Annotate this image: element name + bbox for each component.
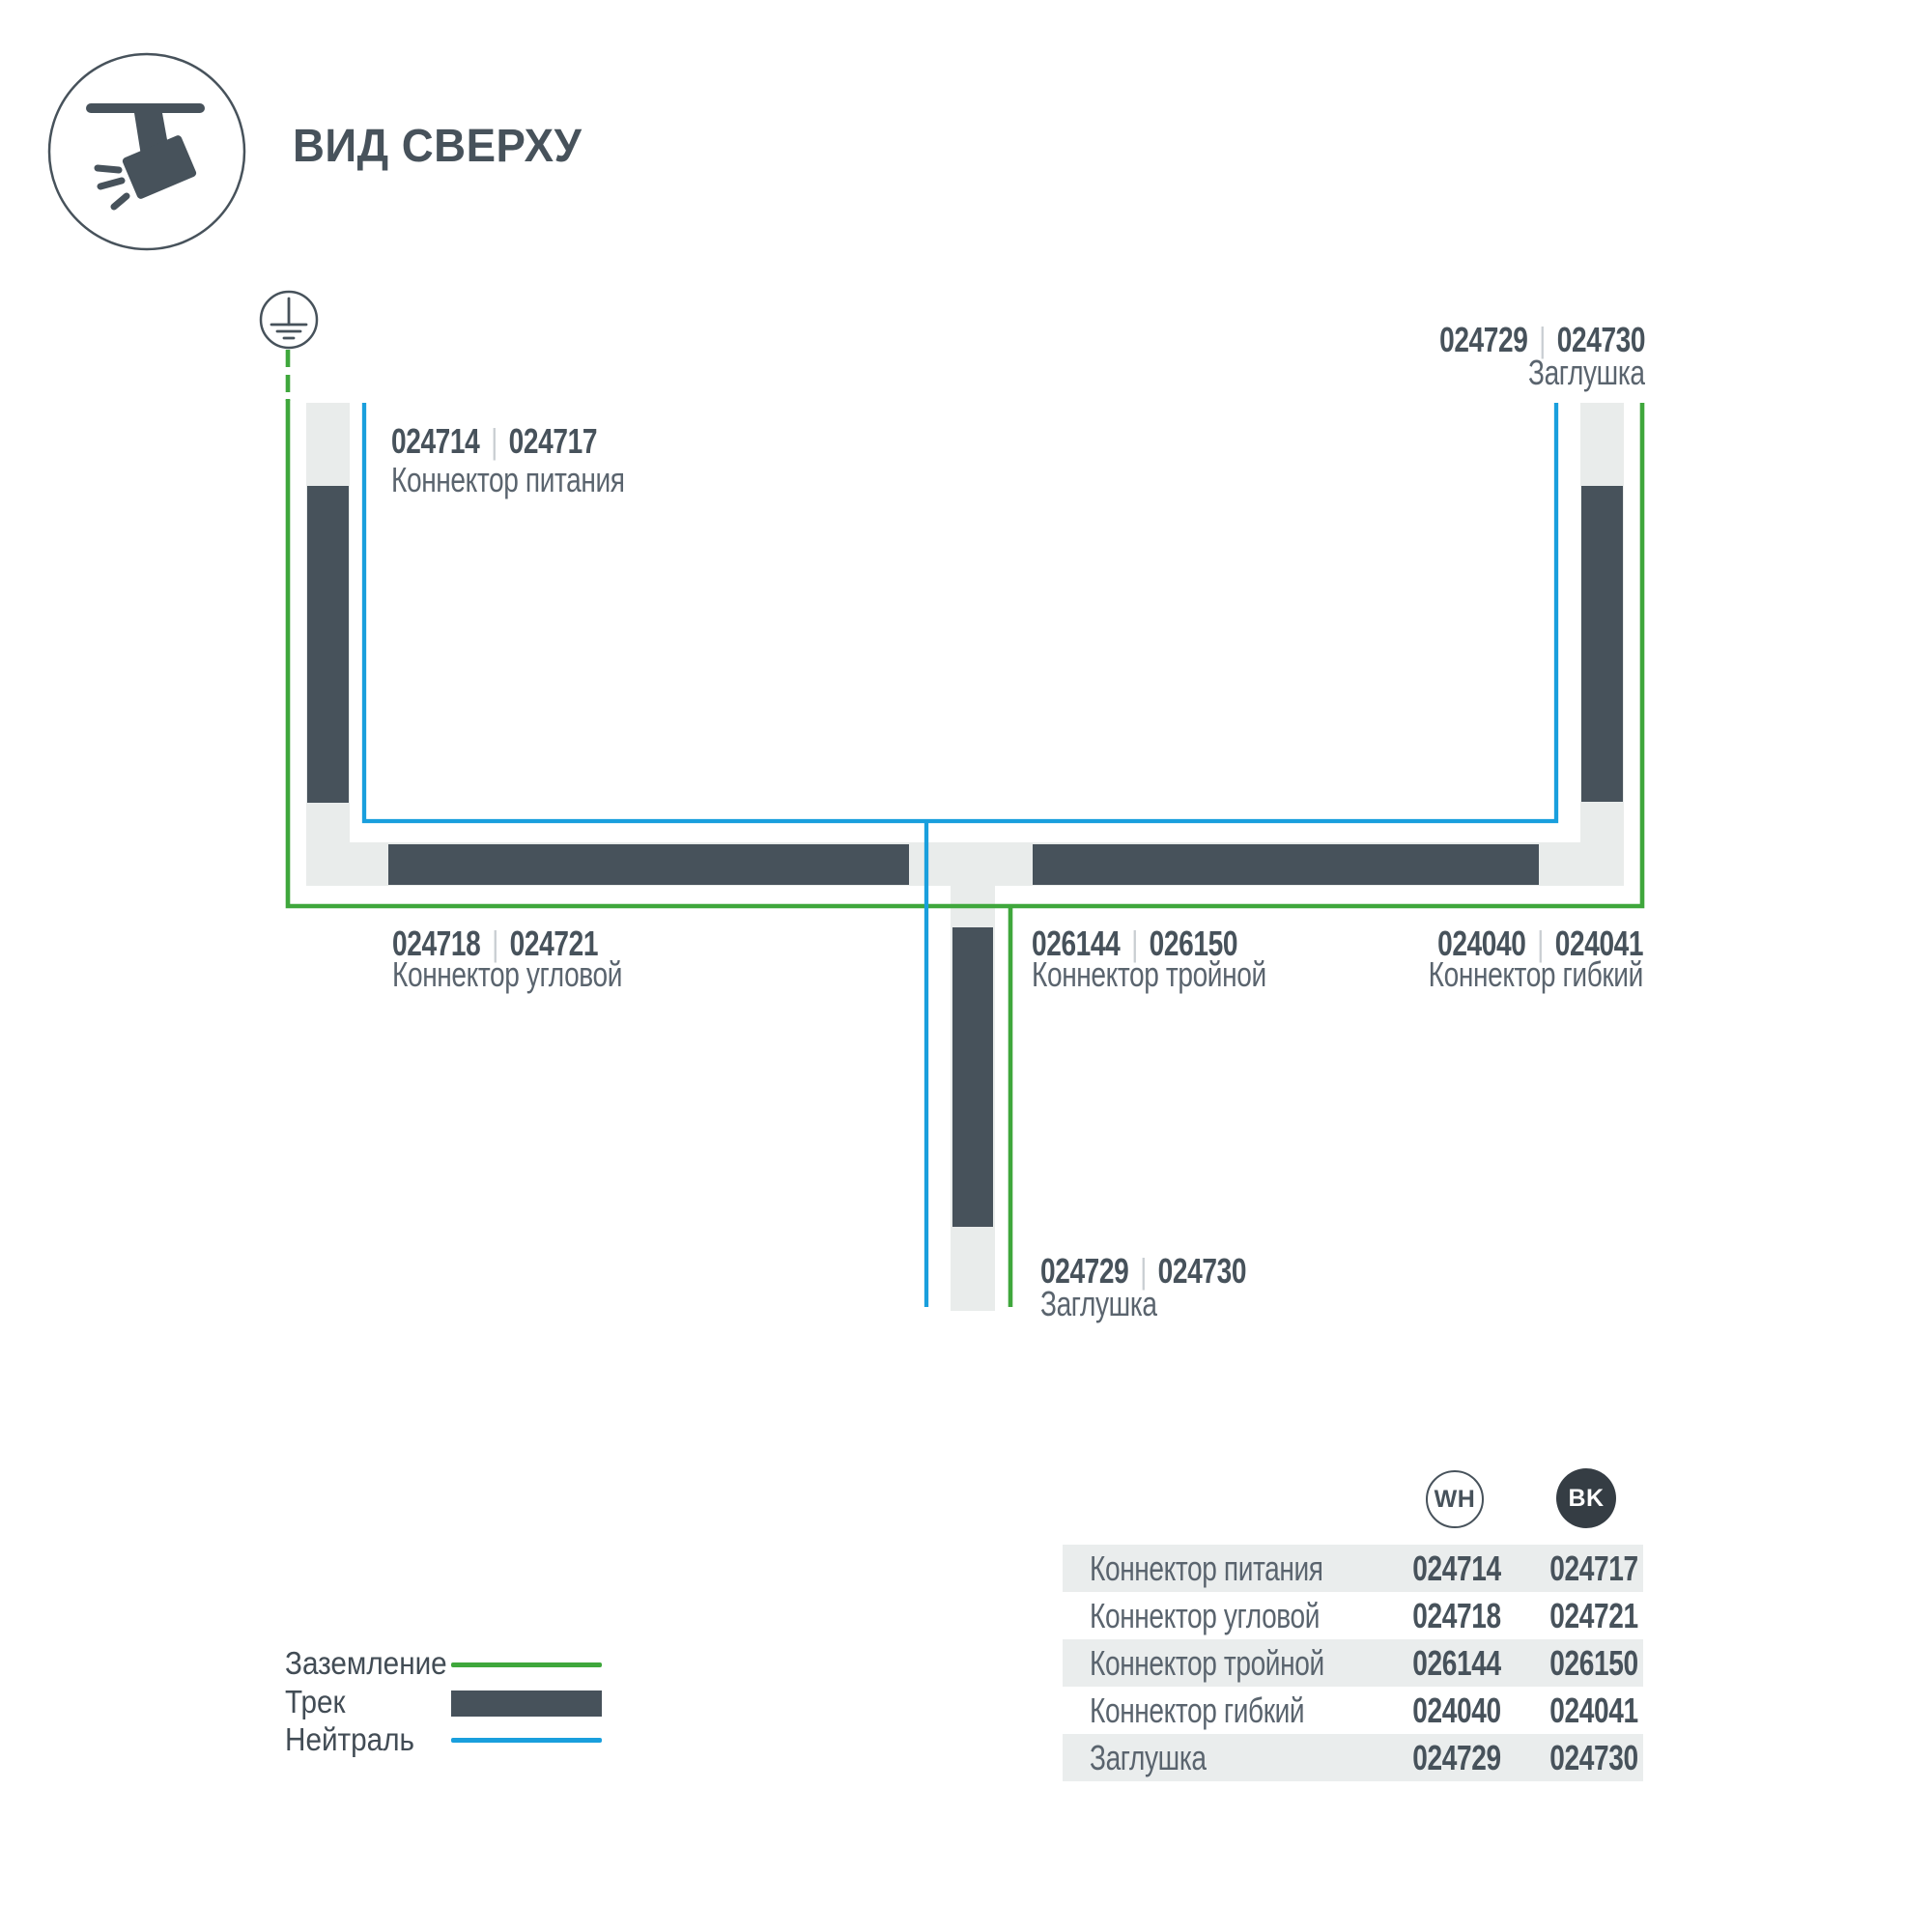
label-corner-name: Коннектор угловой bbox=[392, 957, 622, 992]
legend-label-ground: Заземление bbox=[285, 1647, 447, 1679]
label-power-name: Коннектор питания bbox=[391, 463, 625, 497]
table-row: Коннектор питания 024714 024717 bbox=[1063, 1545, 1643, 1592]
track-segment-stub bbox=[952, 927, 993, 1227]
separator: | bbox=[491, 421, 497, 461]
row-code-wh: 024714 bbox=[1411, 1545, 1502, 1592]
legend-track-swatch bbox=[451, 1690, 602, 1717]
column-header-black: BK bbox=[1556, 1468, 1616, 1528]
track-segment-right bbox=[1581, 486, 1623, 802]
row-code-wh: 026144 bbox=[1411, 1639, 1502, 1687]
ground-earth-icon bbox=[261, 292, 317, 348]
table-row: Заглушка 024729 024730 bbox=[1063, 1734, 1643, 1781]
parts-table: Коннектор питания 024714 024717 Коннекто… bbox=[1063, 1545, 1643, 1781]
code-bk: 024730 bbox=[1158, 1251, 1246, 1291]
row-code-wh: 024040 bbox=[1411, 1687, 1502, 1734]
code-wh: 024729 bbox=[1439, 320, 1527, 359]
row-code-bk: 024730 bbox=[1548, 1734, 1639, 1781]
table-row: Коннектор тройной 026144 026150 bbox=[1063, 1639, 1643, 1687]
track-segment-horiz-right bbox=[1033, 844, 1539, 885]
label-flex-name: Коннектор гибкий bbox=[1429, 957, 1643, 992]
column-header-white: WH bbox=[1426, 1470, 1484, 1528]
legend-ground-line-swatch bbox=[451, 1662, 602, 1667]
label-power-codes: 024714|024717 bbox=[391, 424, 597, 459]
label-triple-name: Коннектор тройной bbox=[1032, 957, 1266, 992]
row-code-wh: 024718 bbox=[1411, 1592, 1502, 1639]
code-wh: 024714 bbox=[391, 421, 479, 461]
track-segment-left bbox=[307, 486, 349, 803]
track-segment-horiz-left bbox=[388, 844, 909, 885]
row-name: Коннектор питания bbox=[1090, 1545, 1323, 1592]
legend-label-neutral: Нейтраль bbox=[285, 1723, 414, 1755]
table-row: Коннектор угловой 024718 024721 bbox=[1063, 1592, 1643, 1639]
row-name: Коннектор гибкий bbox=[1090, 1687, 1304, 1734]
row-name: Коннектор тройной bbox=[1090, 1639, 1324, 1687]
page: ВИД СВЕРХУ bbox=[0, 0, 1932, 1932]
row-name: Заглушка bbox=[1090, 1734, 1207, 1781]
legend-neutral-line-swatch bbox=[451, 1738, 602, 1743]
row-code-bk: 024041 bbox=[1548, 1687, 1639, 1734]
code-bk: 024717 bbox=[509, 421, 597, 461]
row-code-bk: 024721 bbox=[1548, 1592, 1639, 1639]
row-code-bk: 024717 bbox=[1548, 1545, 1639, 1592]
legend-label-track: Трек bbox=[285, 1686, 346, 1718]
row-code-wh: 024729 bbox=[1411, 1734, 1502, 1781]
label-endcap-bottom-name: Заглушка bbox=[1040, 1287, 1157, 1321]
table-row: Коннектор гибкий 024040 024041 bbox=[1063, 1687, 1643, 1734]
row-name: Коннектор угловой bbox=[1090, 1592, 1320, 1639]
label-endcap-top-name: Заглушка bbox=[1528, 355, 1645, 390]
row-code-bk: 026150 bbox=[1548, 1639, 1639, 1687]
